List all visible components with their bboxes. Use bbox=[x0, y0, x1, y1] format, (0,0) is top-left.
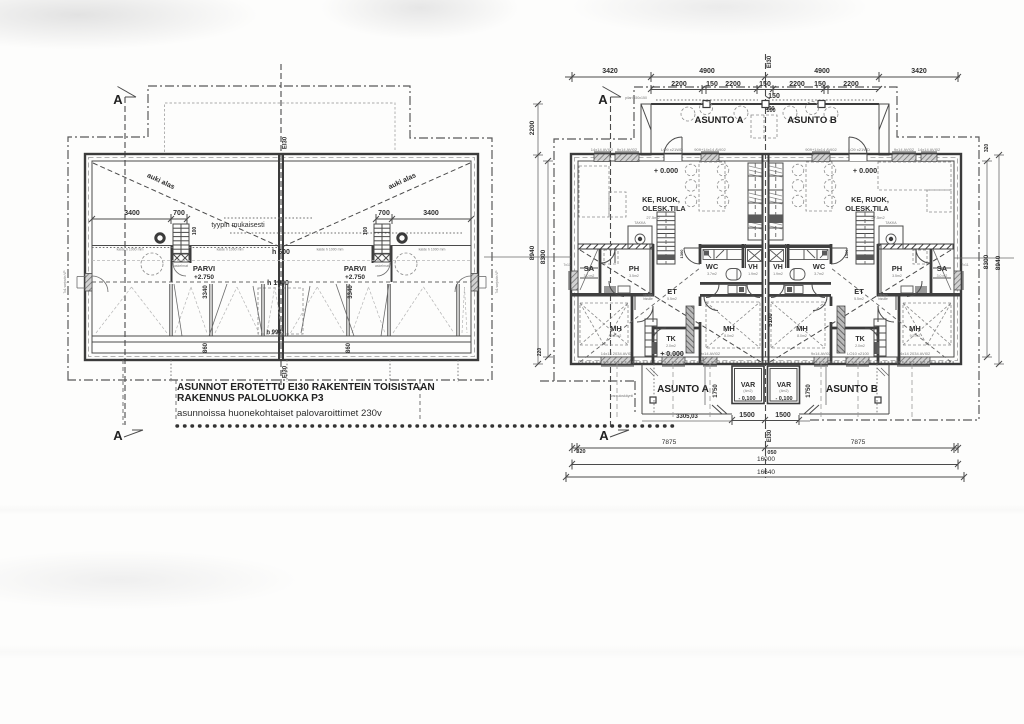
svg-text:askelmat: askelmat bbox=[174, 264, 188, 268]
svg-text:MH: MH bbox=[723, 324, 735, 333]
svg-text:TAKKA: TAKKA bbox=[885, 221, 897, 225]
svg-text:auki alas: auki alas bbox=[146, 172, 176, 191]
svg-text:auki alas: auki alas bbox=[387, 172, 417, 191]
svg-text:7x1 varjostin VP: 7x1 varjostin VP bbox=[63, 270, 67, 293]
svg-text:kaide h 1000 mm: kaide h 1000 mm bbox=[117, 248, 144, 252]
svg-text:3.5m2: 3.5m2 bbox=[629, 274, 639, 278]
svg-text:1.9m2: 1.9m2 bbox=[773, 272, 783, 276]
svg-text:9x14 AVI02: 9x14 AVI02 bbox=[700, 351, 721, 356]
svg-text:RAKENNUS PALOLUOKKA P3: RAKENNUS PALOLUOKKA P3 bbox=[177, 393, 324, 404]
svg-text:(4m2): (4m2) bbox=[779, 389, 788, 393]
svg-text:860: 860 bbox=[346, 342, 352, 353]
svg-text:3400: 3400 bbox=[124, 210, 140, 217]
svg-text:14x14 2034 AVI02: 14x14 2034 AVI02 bbox=[898, 351, 931, 356]
svg-text:PARVI: PARVI bbox=[344, 264, 366, 273]
svg-text:tyypin mukaisesti: tyypin mukaisesti bbox=[211, 222, 265, 229]
svg-text:150: 150 bbox=[814, 81, 826, 88]
svg-text:EI30: EI30 bbox=[767, 55, 773, 68]
svg-text:3420: 3420 bbox=[602, 68, 618, 75]
svg-text:909+14x14 AVI02: 909+14x14 AVI02 bbox=[805, 147, 837, 152]
svg-text:ET: ET bbox=[667, 287, 677, 296]
svg-text:860: 860 bbox=[203, 342, 209, 353]
svg-text:9.5 m2: 9.5 m2 bbox=[910, 334, 921, 338]
svg-text:PH: PH bbox=[892, 264, 902, 273]
svg-text:KE, RUOK,: KE, RUOK, bbox=[851, 195, 889, 204]
svg-text:KE, RUOK,: KE, RUOK, bbox=[642, 195, 680, 204]
svg-text:9x14 AVI02: 9x14 AVI02 bbox=[617, 147, 638, 152]
svg-text:2200: 2200 bbox=[789, 81, 805, 88]
svg-text:TK: TK bbox=[855, 336, 864, 343]
svg-text:+ 0.000: + 0.000 bbox=[853, 166, 877, 175]
svg-text:1500: 1500 bbox=[739, 412, 755, 419]
svg-text:9x14 AVI02: 9x14 AVI02 bbox=[894, 147, 915, 152]
svg-text:asunnoissa huonekohtaiset palo: asunnoissa huonekohtaiset palovaroittime… bbox=[177, 408, 382, 419]
svg-text:askelmat: askelmat bbox=[375, 264, 389, 268]
svg-text:kaide h 1000 mm: kaide h 1000 mm bbox=[317, 248, 344, 252]
svg-text:3.0 m2: 3.0 m2 bbox=[937, 274, 948, 278]
svg-text:909+14x14 AVI02: 909+14x14 AVI02 bbox=[694, 147, 726, 152]
svg-text:hissille: hissille bbox=[643, 297, 653, 301]
svg-text:27.5m2: 27.5m2 bbox=[871, 215, 885, 220]
svg-text:ASUNTO A: ASUNTO A bbox=[657, 384, 709, 395]
svg-text:7875: 7875 bbox=[851, 439, 866, 446]
svg-text:7x11: 7x11 bbox=[961, 263, 968, 267]
svg-text:3305,03: 3305,03 bbox=[676, 414, 698, 420]
svg-text:14x14 AVI02: 14x14 AVI02 bbox=[918, 147, 941, 152]
svg-text:150: 150 bbox=[759, 81, 771, 88]
svg-text:7875: 7875 bbox=[662, 439, 677, 446]
svg-text:LO10 x2100: LO10 x2100 bbox=[847, 351, 870, 356]
svg-text:8300: 8300 bbox=[983, 254, 990, 269]
svg-text:9x14 AVI02: 9x14 AVI02 bbox=[811, 351, 832, 356]
svg-text:SA: SA bbox=[937, 264, 948, 273]
svg-text:3340: 3340 bbox=[203, 285, 209, 299]
svg-text:A: A bbox=[113, 92, 123, 107]
svg-text:- 0,100: - 0,100 bbox=[775, 396, 792, 402]
svg-text:ASUNNOT EROTETTU EI30 RAKENTEI: ASUNNOT EROTETTU EI30 RAKENTEIN TOISISTA… bbox=[177, 382, 435, 393]
svg-text:27.5m2: 27.5m2 bbox=[646, 215, 660, 220]
svg-text:hissille: hissille bbox=[878, 297, 888, 301]
svg-text:PARVI: PARVI bbox=[193, 264, 215, 273]
svg-text:150: 150 bbox=[706, 81, 718, 88]
svg-text:7x11: 7x11 bbox=[563, 263, 570, 267]
svg-text:kaide h 1000 mm: kaide h 1000 mm bbox=[217, 248, 244, 252]
svg-text:3400: 3400 bbox=[423, 210, 439, 217]
svg-text:7x1 varjostin VP: 7x1 varjostin VP bbox=[495, 270, 499, 293]
svg-text:3420: 3420 bbox=[911, 68, 927, 75]
svg-text:320: 320 bbox=[576, 449, 585, 455]
svg-text:320: 320 bbox=[984, 144, 990, 153]
svg-text:4900: 4900 bbox=[699, 68, 715, 75]
svg-text:8.0m2: 8.0m2 bbox=[797, 334, 807, 338]
svg-text:MH: MH bbox=[610, 324, 622, 333]
svg-text:5.5m2: 5.5m2 bbox=[854, 297, 864, 301]
svg-text:100: 100 bbox=[192, 227, 198, 236]
svg-text:A: A bbox=[598, 92, 608, 107]
svg-text:EI30: EI30 bbox=[283, 136, 289, 149]
svg-text:MH: MH bbox=[796, 324, 808, 333]
svg-text:3.7m2: 3.7m2 bbox=[814, 272, 824, 276]
svg-text:VAR: VAR bbox=[741, 382, 755, 389]
svg-text:2200: 2200 bbox=[671, 81, 687, 88]
svg-text:VH: VH bbox=[773, 264, 783, 271]
svg-text:OLESK.TILA: OLESK.TILA bbox=[845, 204, 889, 213]
svg-text:1750: 1750 bbox=[806, 384, 812, 398]
svg-text:WC: WC bbox=[813, 262, 826, 271]
svg-text:2.0m2: 2.0m2 bbox=[666, 344, 676, 348]
svg-text:VH: VH bbox=[748, 264, 758, 271]
svg-text:+ 0.000: + 0.000 bbox=[660, 351, 684, 358]
svg-text:1300: 1300 bbox=[679, 249, 684, 259]
svg-text:100: 100 bbox=[363, 227, 369, 236]
svg-text:3.7m2: 3.7m2 bbox=[707, 272, 717, 276]
svg-text:A: A bbox=[599, 428, 609, 443]
svg-text:1300: 1300 bbox=[844, 249, 849, 259]
svg-text:4900: 4900 bbox=[814, 68, 830, 75]
svg-text:h 600: h 600 bbox=[272, 249, 290, 256]
svg-text:700: 700 bbox=[378, 210, 390, 217]
svg-text:3.0 m2: 3.0 m2 bbox=[584, 274, 595, 278]
svg-text:kaide h 1000 mm: kaide h 1000 mm bbox=[419, 248, 446, 252]
svg-text:3.5m2: 3.5m2 bbox=[892, 274, 902, 278]
svg-text:TK: TK bbox=[666, 336, 675, 343]
svg-text:8940: 8940 bbox=[529, 245, 536, 260]
svg-text:+2.750: +2.750 bbox=[194, 274, 214, 281]
svg-text:SA: SA bbox=[584, 264, 595, 273]
svg-text:h 994: h 994 bbox=[266, 330, 282, 336]
svg-text:+2.750: +2.750 bbox=[345, 274, 365, 281]
svg-text:varauloskäynti: varauloskäynti bbox=[611, 394, 634, 398]
svg-text:2200: 2200 bbox=[529, 120, 536, 135]
svg-text:16640: 16640 bbox=[757, 469, 775, 476]
svg-text:A: A bbox=[113, 428, 123, 443]
svg-text:OLESK.TILA: OLESK.TILA bbox=[642, 204, 686, 213]
svg-text:TAKKA: TAKKA bbox=[634, 221, 646, 225]
svg-text:2200: 2200 bbox=[843, 81, 859, 88]
svg-text:2200: 2200 bbox=[725, 81, 741, 88]
svg-text:1750: 1750 bbox=[713, 384, 719, 398]
svg-text:ET: ET bbox=[854, 287, 864, 296]
svg-text:8.0m2: 8.0m2 bbox=[724, 334, 734, 338]
svg-text:16000: 16000 bbox=[757, 456, 775, 463]
svg-text:ASUNTO A: ASUNTO A bbox=[694, 115, 743, 126]
svg-text:ASUNTO B: ASUNTO B bbox=[826, 384, 878, 395]
svg-text:- 0,100: - 0,100 bbox=[738, 396, 755, 402]
svg-text:700: 700 bbox=[173, 210, 185, 217]
svg-text:PH: PH bbox=[629, 264, 639, 273]
svg-text:14x14 2034 AVI02: 14x14 2034 AVI02 bbox=[601, 351, 634, 356]
svg-text:5.5m2: 5.5m2 bbox=[667, 297, 677, 301]
svg-text:MH: MH bbox=[909, 324, 921, 333]
svg-text:14x14 AVI02: 14x14 AVI02 bbox=[591, 147, 614, 152]
svg-text:EI30: EI30 bbox=[767, 429, 773, 442]
svg-text:9.5 m2: 9.5 m2 bbox=[611, 334, 622, 338]
svg-text:2.0m2: 2.0m2 bbox=[855, 344, 865, 348]
svg-text:VAR: VAR bbox=[777, 382, 791, 389]
svg-text:EI30: EI30 bbox=[283, 365, 289, 378]
svg-text:ASUNTO B: ASUNTO B bbox=[787, 115, 837, 126]
svg-text:220: 220 bbox=[537, 348, 543, 357]
svg-text:(4m2): (4m2) bbox=[743, 389, 752, 393]
svg-text:1.9m2: 1.9m2 bbox=[748, 272, 758, 276]
svg-text:100: 100 bbox=[766, 108, 775, 114]
svg-text:+ 0.000: + 0.000 bbox=[654, 166, 678, 175]
svg-text:5100: 5100 bbox=[768, 313, 774, 327]
svg-text:WC: WC bbox=[706, 262, 719, 271]
svg-text:1500: 1500 bbox=[775, 412, 791, 419]
svg-text:pilari 150x150: pilari 150x150 bbox=[625, 96, 647, 100]
